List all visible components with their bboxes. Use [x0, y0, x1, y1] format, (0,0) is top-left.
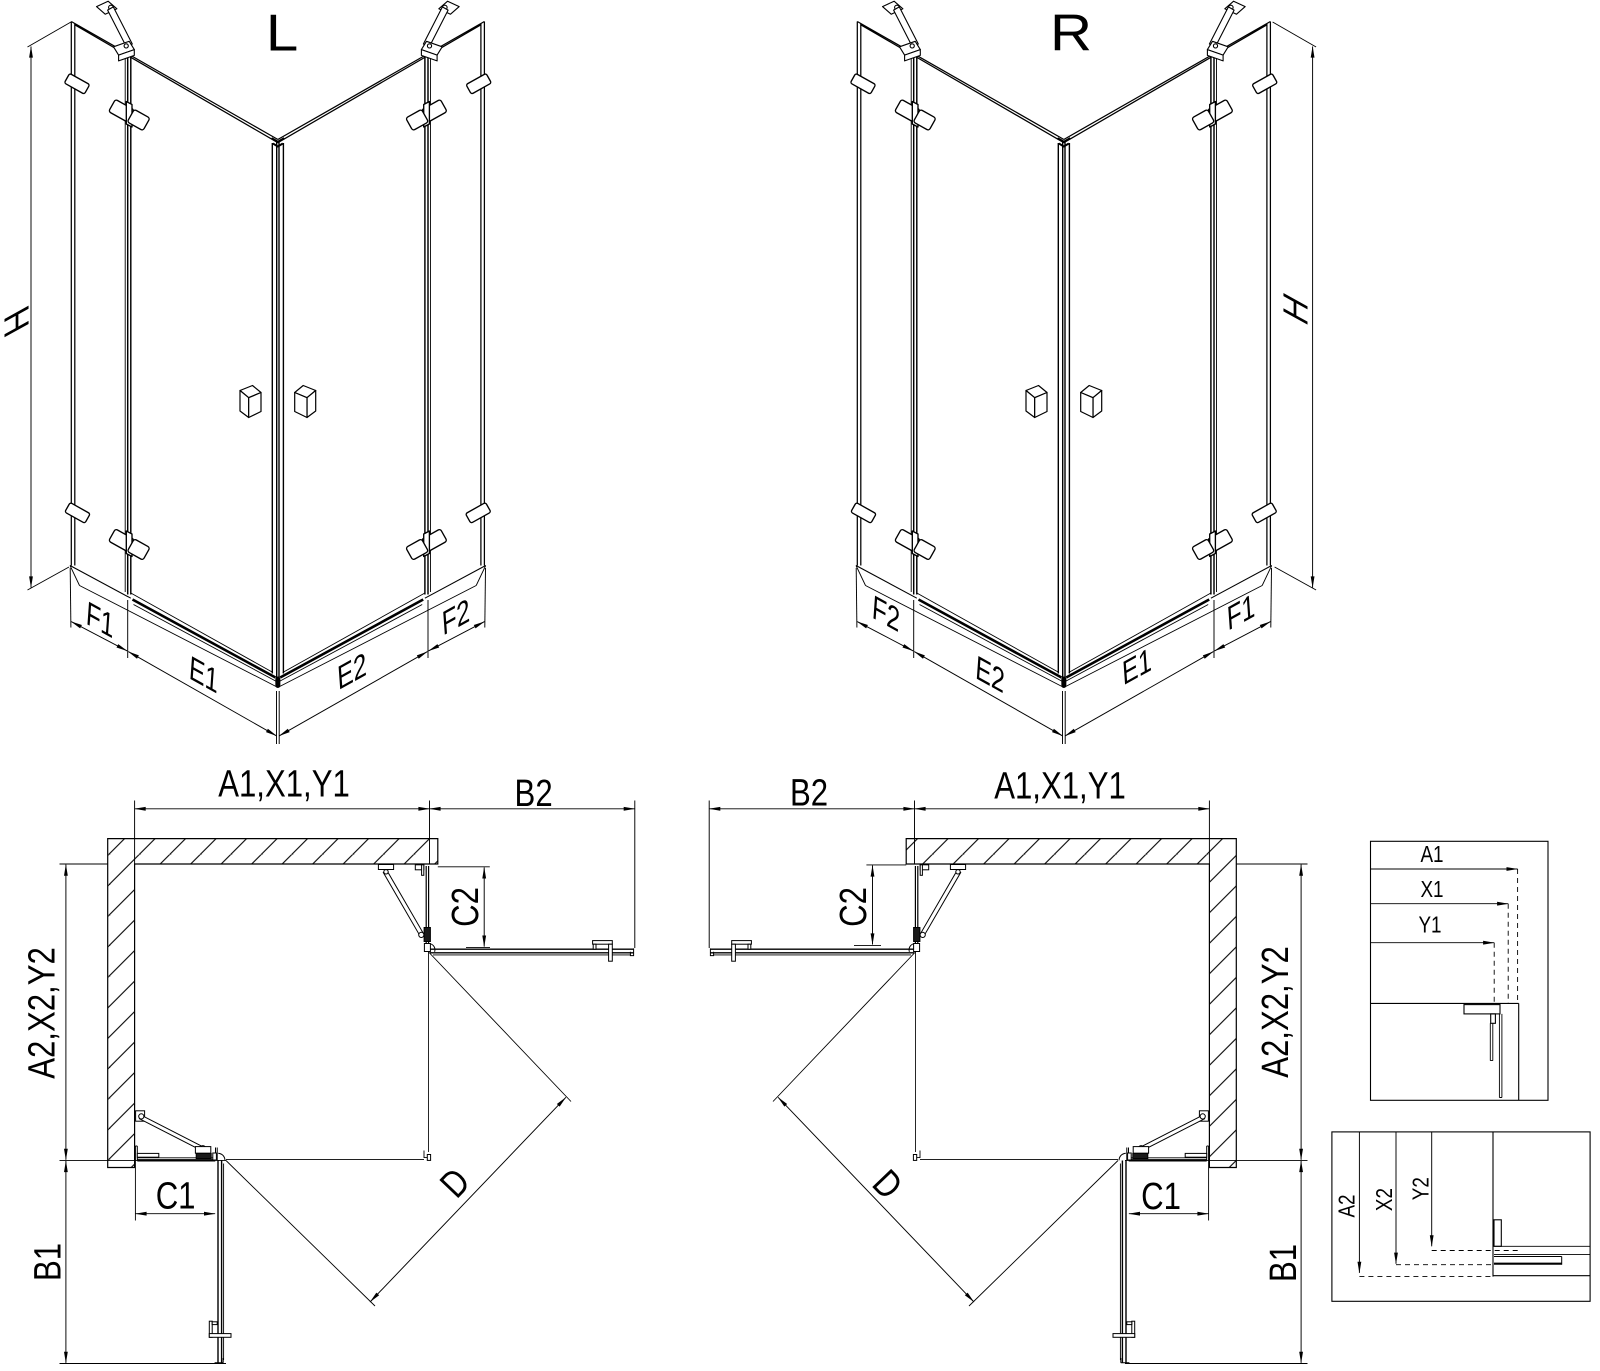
svg-text:A2,X2,Y2: A2,X2,Y2: [22, 947, 64, 1079]
svg-text:X2: X2: [1372, 1188, 1397, 1211]
svg-text:H: H: [1276, 286, 1315, 331]
svg-text:A2,X2,Y2: A2,X2,Y2: [1255, 946, 1297, 1078]
svg-text:F1: F1: [85, 595, 115, 646]
svg-text:B1: B1: [28, 1243, 70, 1281]
svg-text:B2: B2: [515, 773, 553, 815]
svg-text:D: D: [864, 1163, 910, 1208]
svg-text:B2: B2: [790, 773, 828, 815]
svg-text:A1: A1: [1420, 842, 1443, 867]
svg-text:A1,X1,Y1: A1,X1,Y1: [994, 766, 1126, 808]
svg-text:E2: E2: [336, 646, 367, 698]
svg-text:L: L: [266, 3, 298, 61]
svg-text:F2: F2: [441, 592, 471, 643]
svg-text:F1: F1: [1226, 587, 1256, 638]
svg-text:Y2: Y2: [1409, 1177, 1434, 1200]
svg-text:C1: C1: [1141, 1176, 1181, 1218]
svg-text:E1: E1: [188, 649, 219, 701]
svg-text:R: R: [1050, 3, 1092, 61]
svg-text:E2: E2: [974, 649, 1005, 701]
svg-text:X1: X1: [1420, 877, 1443, 902]
svg-text:A2: A2: [1335, 1194, 1360, 1217]
svg-text:C2: C2: [445, 887, 487, 927]
svg-text:D: D: [433, 1161, 479, 1206]
svg-text:C2: C2: [833, 887, 875, 927]
svg-text:A1,X1,Y1: A1,X1,Y1: [218, 764, 350, 806]
svg-text:F2: F2: [871, 589, 901, 640]
svg-text:B1: B1: [1263, 1244, 1305, 1282]
svg-text:C1: C1: [156, 1176, 196, 1218]
svg-text:Y1: Y1: [1418, 913, 1441, 938]
